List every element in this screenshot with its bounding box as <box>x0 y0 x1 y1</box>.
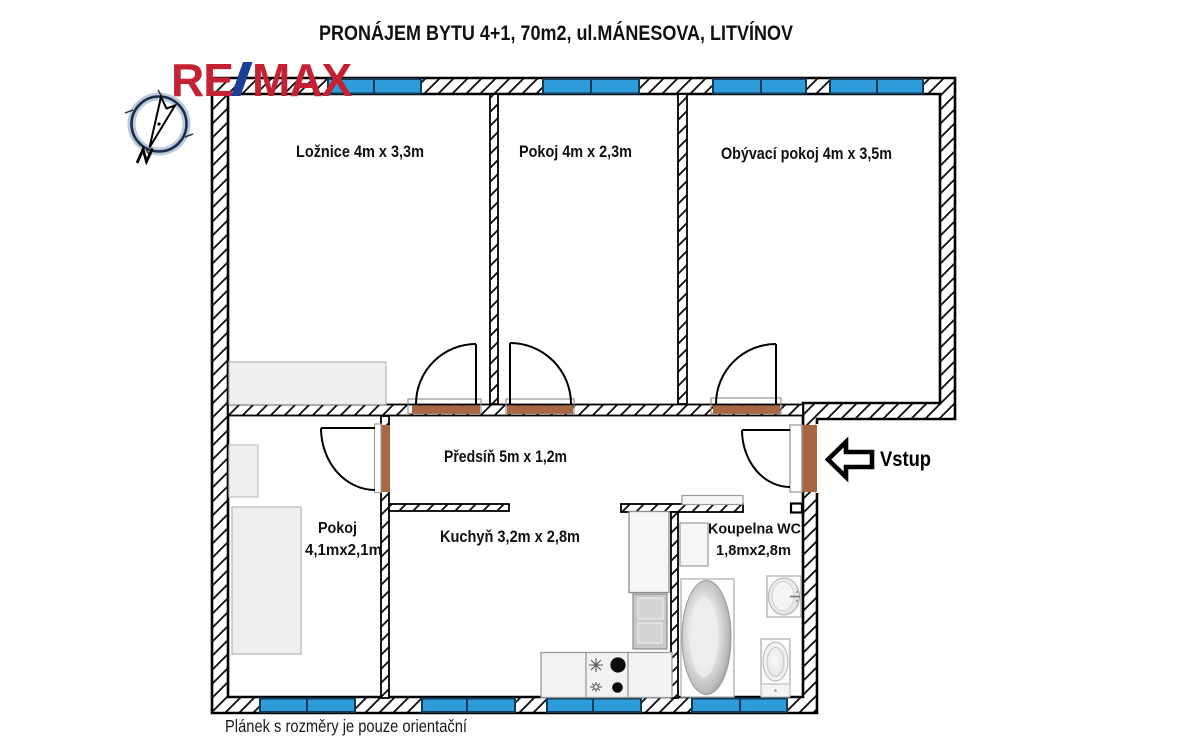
svg-text:Vstup: Vstup <box>880 448 931 471</box>
svg-text:Ložnice 4m x 3,3m: Ložnice 4m x 3,3m <box>296 142 424 161</box>
svg-text:1,8mx2,8m: 1,8mx2,8m <box>716 542 791 559</box>
svg-text:Plánek s rozměry je pouze orie: Plánek s rozměry je pouze orientační <box>225 716 467 736</box>
svg-text:4,1mx2,1m: 4,1mx2,1m <box>305 542 382 559</box>
svg-text:PRONÁJEM BYTU 4+1, 70m2, ul.MÁ: PRONÁJEM BYTU 4+1, 70m2, ul.MÁNESOVA, LI… <box>319 22 793 45</box>
svg-text:MAX: MAX <box>252 54 353 106</box>
svg-text:Předsíň 5m x 1,2m: Předsíň 5m x 1,2m <box>444 447 567 466</box>
svg-text:Kuchyň 3,2m x 2,8m: Kuchyň 3,2m x 2,8m <box>440 527 580 546</box>
svg-text:Pokoj 4m x 2,3m: Pokoj 4m x 2,3m <box>519 142 632 161</box>
svg-text:Koupelna WC: Koupelna WC <box>708 521 801 538</box>
svg-text:Pokoj: Pokoj <box>318 520 357 537</box>
svg-text:RE: RE <box>171 54 233 106</box>
svg-text:Obývací pokoj 4m x 3,5m: Obývací pokoj 4m x 3,5m <box>721 144 892 163</box>
